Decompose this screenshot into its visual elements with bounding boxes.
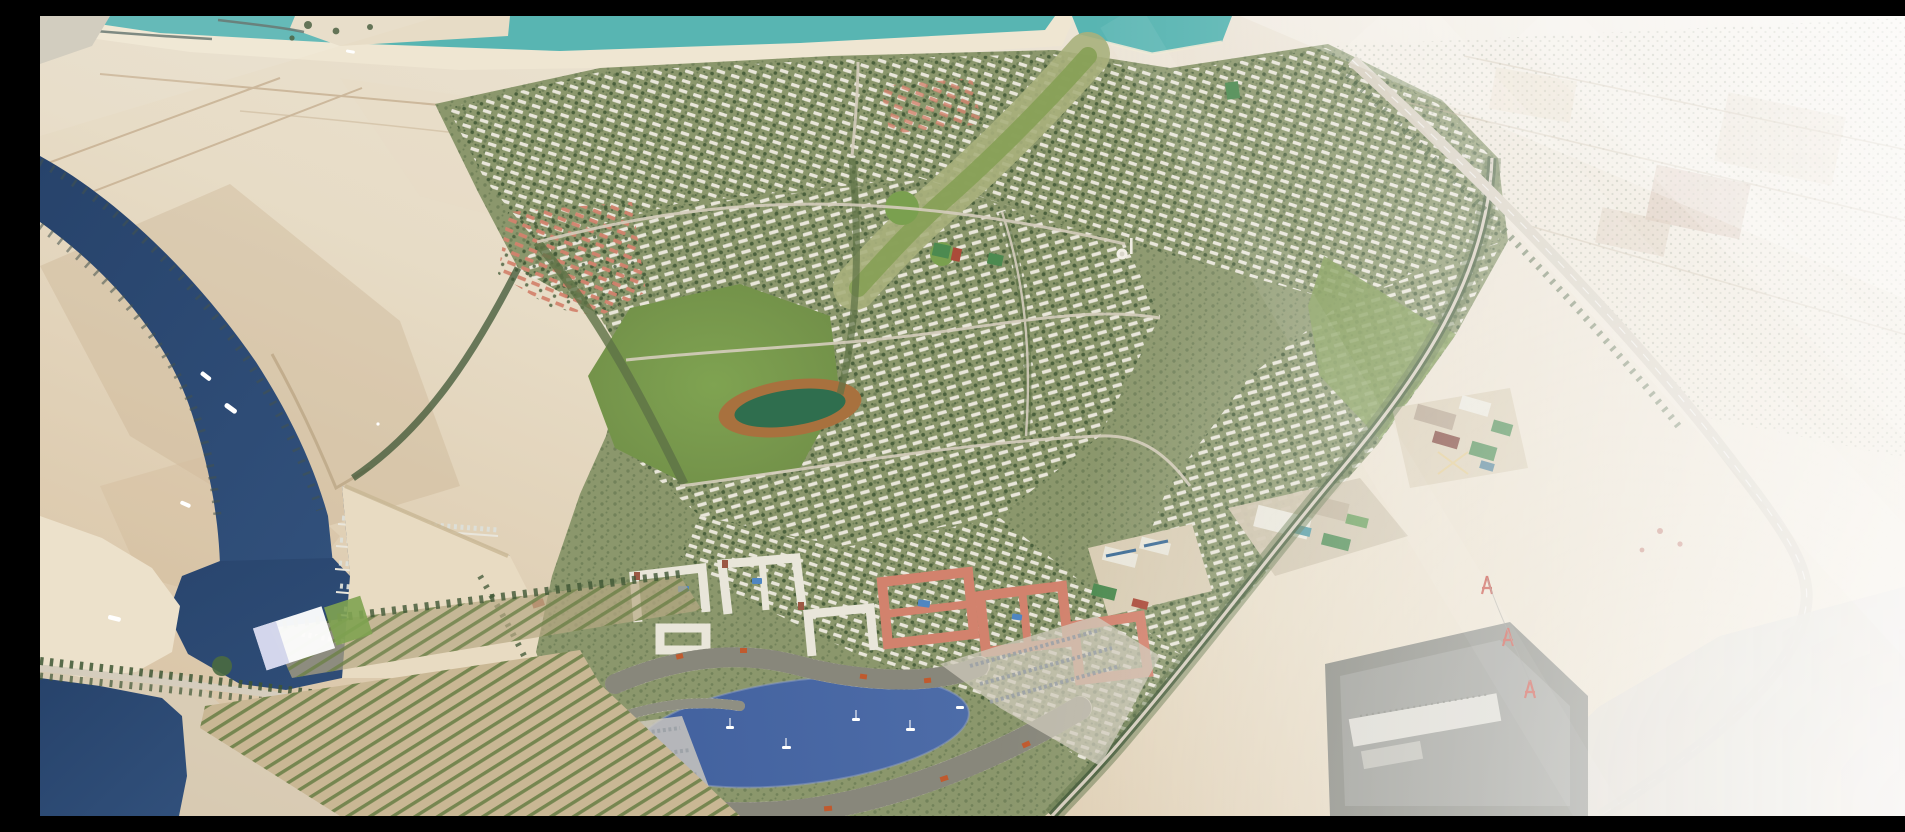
atmosphere-haze <box>40 16 1905 816</box>
render-canvas <box>40 16 1905 816</box>
aerial-render: Aerial master-plan rendering of a waterf… <box>40 16 1905 816</box>
